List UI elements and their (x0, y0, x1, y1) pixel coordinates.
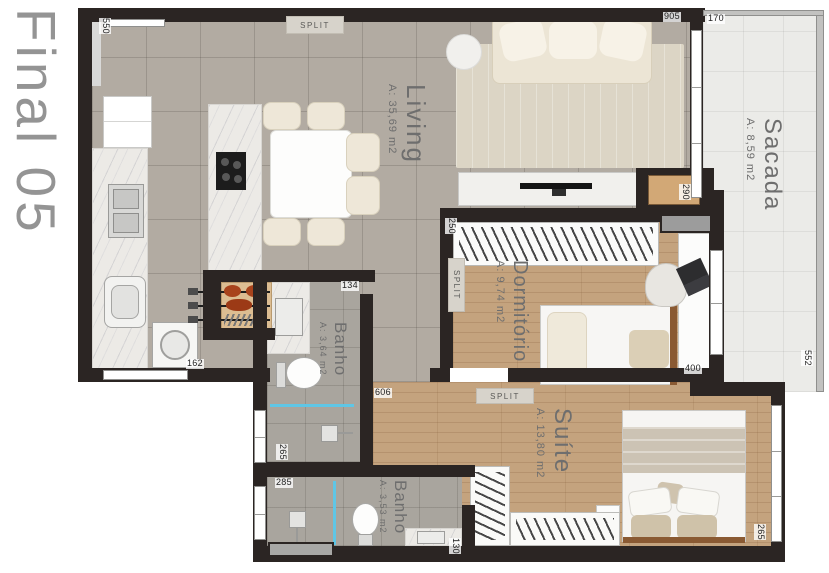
dormitorio-door-opening (450, 368, 508, 382)
window-mullion (692, 87, 701, 88)
room-label-sacada: A: 8,59 m2 Sacada (744, 118, 786, 211)
room-label-banho-social: A: 3,64 m2 Banho (318, 322, 350, 376)
sofa-cushion (598, 17, 649, 63)
dining-chair (346, 133, 380, 172)
room-area: A: 13,80 m2 (534, 408, 546, 478)
dim-service-window: 162 (186, 359, 204, 369)
skewer-handle (188, 302, 198, 309)
bed-cushion (629, 330, 669, 368)
window-living-top (103, 19, 165, 27)
refrigerator (103, 96, 152, 148)
dim-banho-social-door-wall: 134 (341, 281, 359, 291)
tv-console (458, 172, 638, 206)
toilet (352, 503, 379, 536)
sofa-cushion (498, 17, 549, 63)
dormitorio-shelf (660, 214, 712, 233)
dim-banho-social-window: 265 (276, 444, 288, 460)
room-area: A: 9,74 m2 (494, 260, 506, 323)
bed-blanket (623, 427, 745, 473)
room-name: Sacada (758, 118, 786, 211)
floor-plan: Final 05 (0, 0, 829, 573)
room-area: A: 3,53 m2 (378, 480, 388, 534)
shower-head-icon (321, 425, 338, 442)
bbq-sausage (224, 314, 254, 326)
dim-living-top: 905 (663, 12, 681, 22)
room-name: Banho (330, 322, 350, 376)
bathroom-sink (417, 531, 445, 544)
kitchen-counter (92, 148, 148, 370)
bed-headboard (623, 537, 745, 543)
skewer-handle (188, 288, 198, 295)
wall-banho-suite-right (462, 505, 475, 562)
shower-glass-partition (333, 481, 336, 545)
suite-closet-horizontal (510, 512, 620, 546)
window-banho-social (254, 410, 266, 463)
burner-icon (221, 158, 229, 166)
bbq-meat (224, 285, 241, 297)
room-name: Dormitório (508, 260, 531, 362)
dim-suite-window: 265 (754, 524, 766, 540)
sofa-cushion (549, 21, 597, 59)
closet-hangers-icon (475, 472, 505, 540)
split-unit-label: SPLIT (476, 388, 534, 404)
dining-chair (346, 176, 380, 215)
room-area: A: 8,59 m2 (744, 118, 756, 181)
wall-banho-social-right (360, 294, 373, 477)
split-unit-label: SPLIT (286, 16, 344, 34)
vent-panel (268, 542, 334, 557)
bed-pillow (631, 515, 671, 539)
dim-living-sacada-opening: 290 (679, 184, 691, 200)
room-name: Banho (390, 480, 410, 534)
dim-suite-entry: 606 (374, 388, 392, 398)
dining-chair (307, 102, 345, 130)
skewer-handle (188, 316, 198, 323)
window-mullion (255, 437, 265, 438)
window-mullion (772, 451, 781, 452)
dining-chair (263, 102, 301, 130)
balcony-railing-right (816, 10, 824, 392)
sofa (492, 16, 652, 84)
tv-stand (552, 189, 566, 196)
wall-balcony-suite (690, 382, 785, 396)
tank-basin (111, 285, 139, 319)
room-label-banho-suite: A: 3,53 m2 Banho (378, 480, 410, 534)
toilet (286, 357, 322, 389)
washer-drum (160, 330, 190, 360)
wall-top (78, 8, 705, 22)
window-mullion (255, 514, 265, 515)
closet-hangers-icon (459, 227, 653, 261)
suite-closet-vertical (470, 466, 510, 546)
window-mullion (692, 143, 701, 144)
dining-table (270, 130, 352, 218)
dim-banho-suite-counter: 130 (449, 538, 461, 554)
refrigerator-door-line (104, 121, 151, 122)
room-area: A: 35,69 m2 (386, 84, 398, 154)
dim-banho-suite-window: 285 (275, 478, 293, 488)
dim-dorm-bottom-wall: 400 (684, 364, 702, 374)
bed-pillow (677, 515, 717, 539)
dim-sacada-rail: 552 (801, 350, 813, 366)
bathroom-sink (275, 298, 303, 336)
room-label-living: A: 35,69 m2 Living (386, 84, 431, 164)
cooktop (216, 152, 246, 190)
unit-title: Final 05 (4, 8, 68, 378)
dim-top-window: 550 (99, 18, 111, 34)
sink-basin (113, 189, 139, 209)
kitchen-sink (108, 184, 144, 238)
bbq-meat (226, 299, 252, 311)
room-label-suite: A: 13,80 m2 Suíte (534, 408, 576, 478)
laundry-tank (104, 276, 146, 328)
wall-banho-suite-top (373, 465, 475, 477)
dining-chair (307, 218, 345, 246)
room-name: Suíte (548, 408, 576, 474)
wall-shower-divider (253, 462, 373, 477)
window-suite (771, 405, 782, 542)
window-living-balcony (691, 30, 702, 198)
window-service (103, 370, 188, 380)
desk (678, 233, 710, 378)
bed-pillow (675, 486, 720, 518)
window-mullion (711, 303, 722, 304)
window-dormitorio (710, 250, 723, 355)
closet-hangers-icon (516, 518, 614, 540)
shower-glass-partition (270, 404, 354, 407)
dormitorio-closet (453, 222, 659, 266)
toilet-tank (358, 534, 373, 546)
room-area: A: 3,64 m2 (318, 322, 328, 376)
room-label-dormitorio: A: 9,74 m2 Dormitório (494, 260, 531, 362)
shower-head-icon (289, 511, 306, 528)
wall-left (78, 8, 92, 382)
wall-bbq-bottom (203, 328, 275, 340)
wall-bbq-left (203, 282, 221, 332)
window-mullion (772, 496, 781, 497)
dim-dorm-closet-wall: 250 (445, 218, 457, 234)
double-bed (622, 410, 746, 542)
sink-basin (113, 213, 139, 233)
dim-sacada-top: 170 (707, 14, 725, 24)
bed-pillow (627, 486, 672, 518)
dining-chair (263, 218, 301, 246)
window-banho-suite (254, 486, 266, 540)
split-unit-label: SPLIT (448, 258, 465, 312)
toilet-tank (276, 362, 286, 388)
room-name: Living (400, 84, 431, 164)
side-table (446, 34, 482, 70)
shower-arm-icon (338, 432, 353, 434)
